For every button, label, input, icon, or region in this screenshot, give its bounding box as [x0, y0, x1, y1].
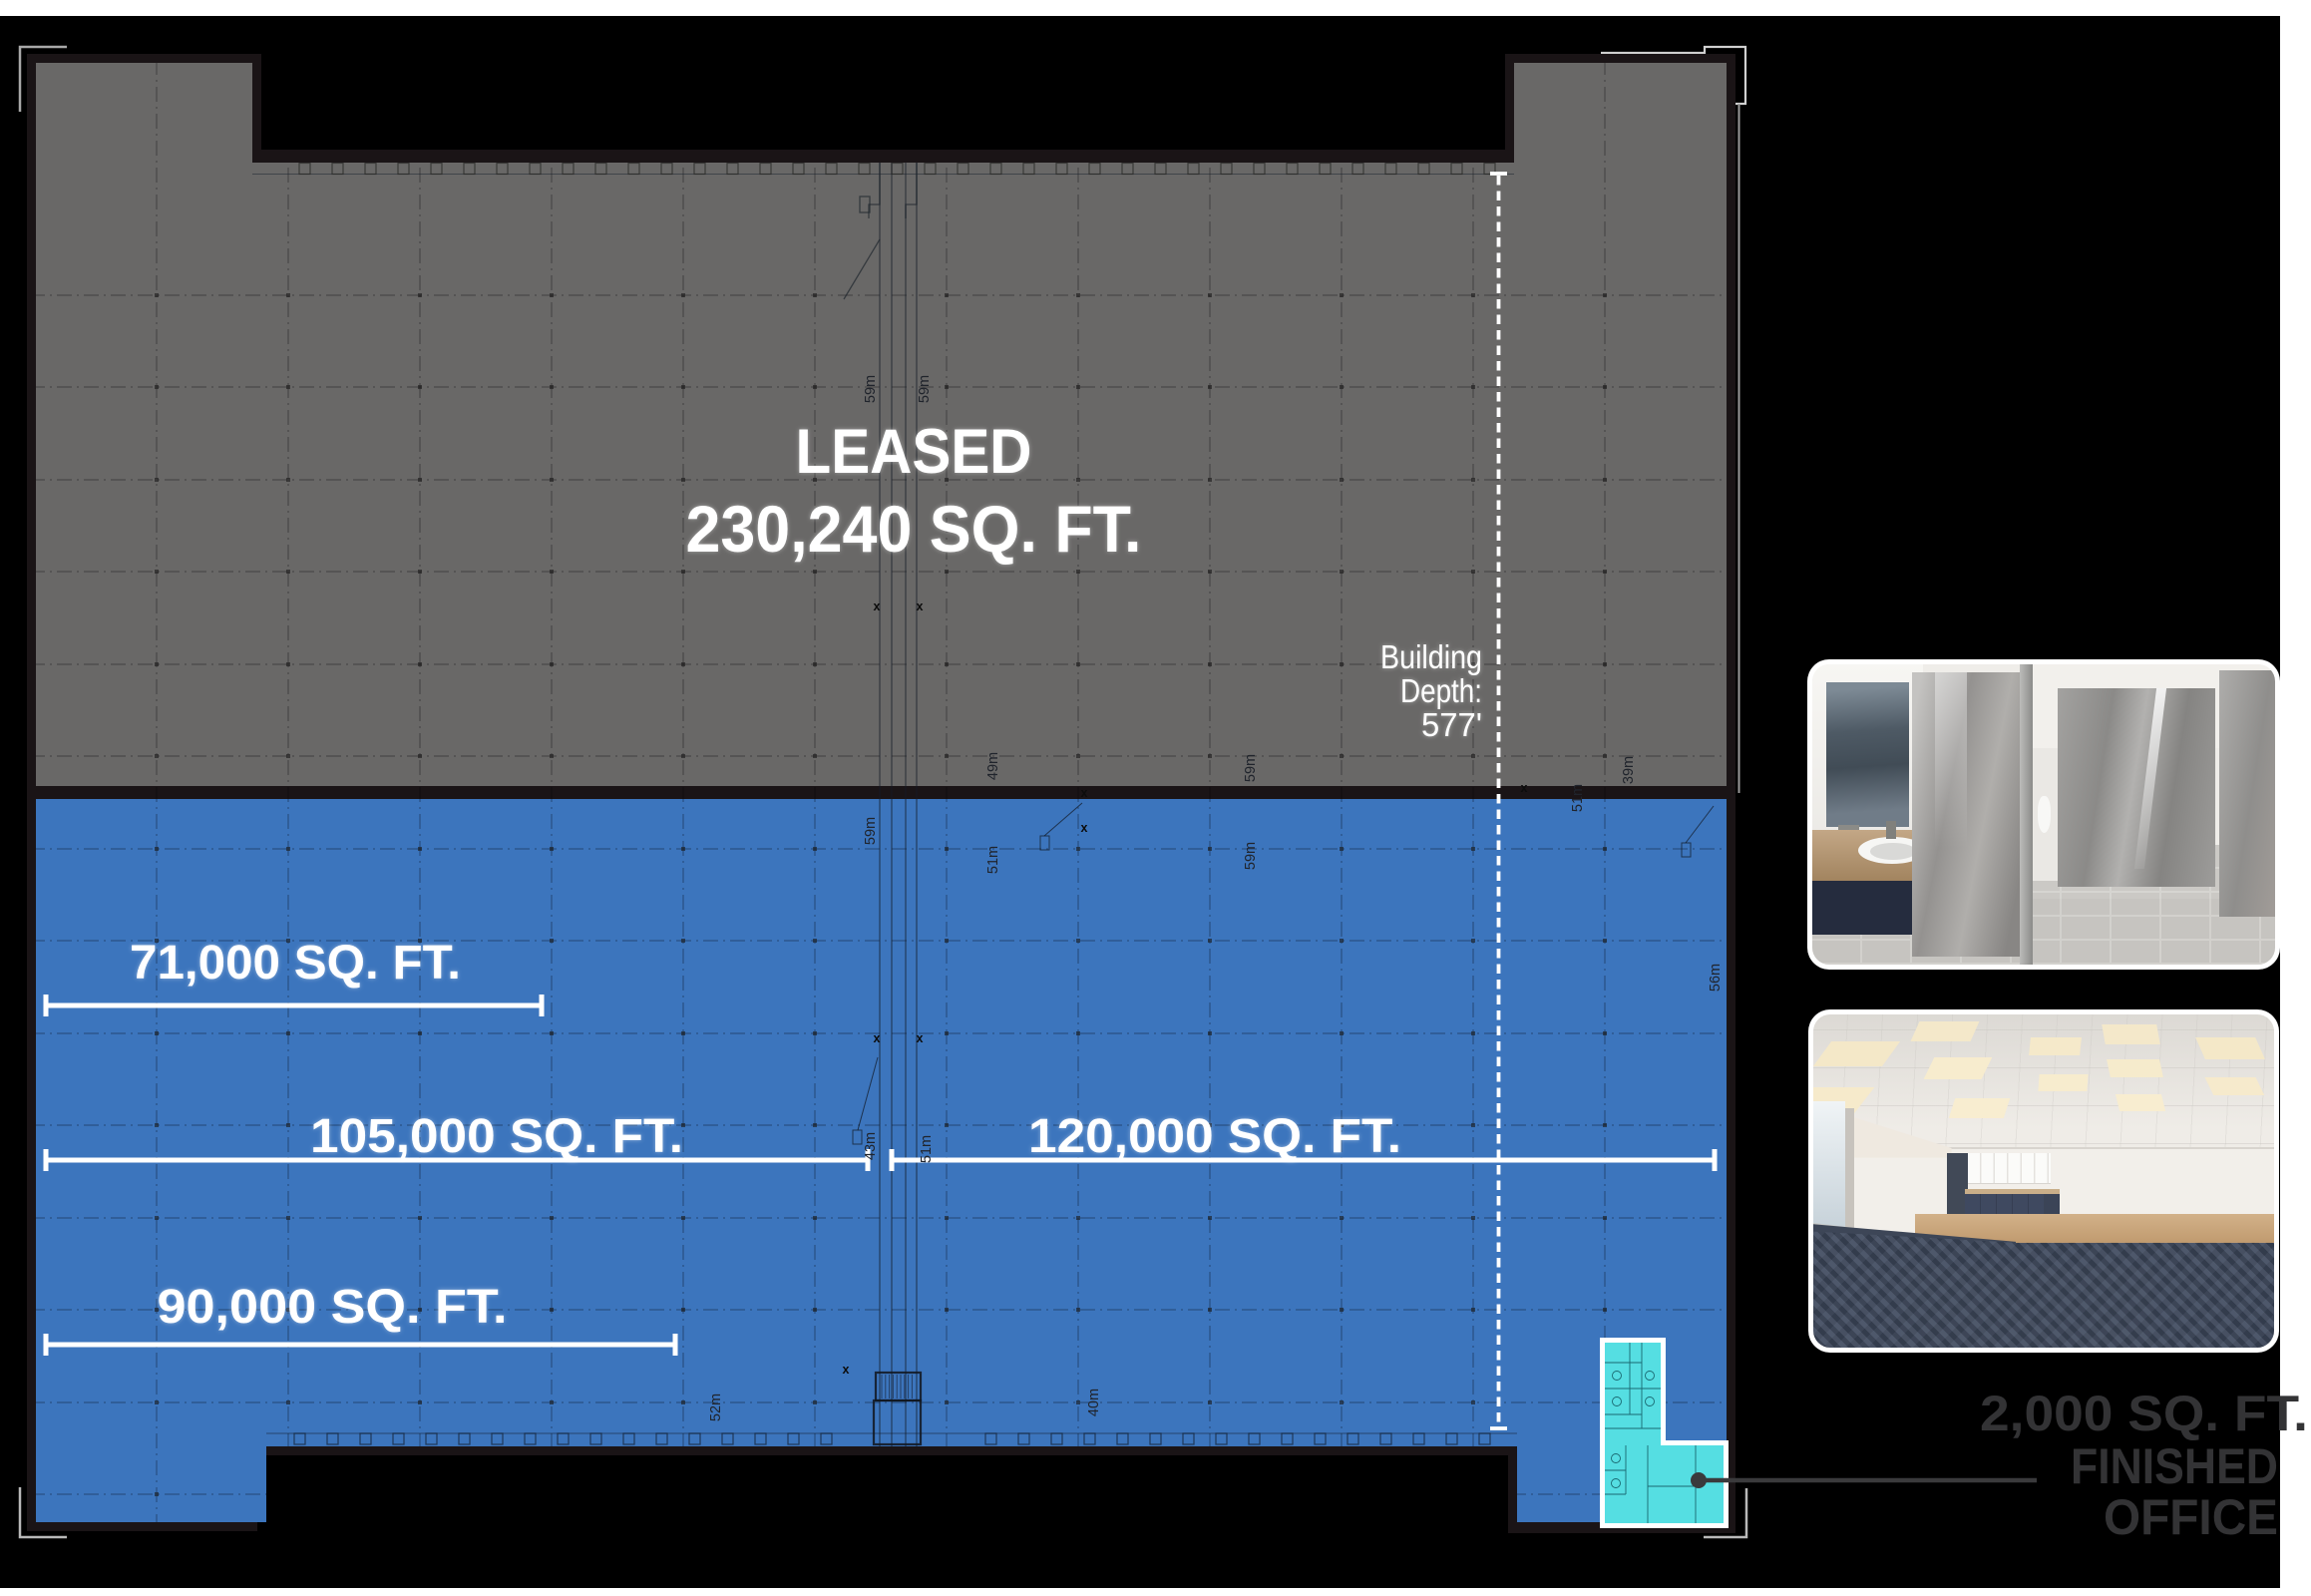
svg-text:x: x — [843, 1363, 850, 1377]
svg-text:230,240 SQ. FT.: 230,240 SQ. FT. — [686, 492, 1142, 566]
svg-text:90,000 SQ. FT.: 90,000 SQ. FT. — [158, 1281, 508, 1334]
svg-text:2,000 SQ. FT.: 2,000 SQ. FT. — [1980, 1386, 2308, 1441]
svg-text:51m: 51m — [985, 846, 1001, 874]
svg-text:59m: 59m — [863, 817, 879, 845]
svg-text:52m: 52m — [708, 1394, 724, 1421]
svg-text:40m: 40m — [1086, 1389, 1102, 1416]
svg-text:71,000 SQ. FT.: 71,000 SQ. FT. — [130, 937, 461, 990]
svg-text:43m: 43m — [863, 1132, 879, 1160]
svg-text:x: x — [1521, 781, 1528, 795]
svg-text:OFFICE: OFFICE — [2104, 1489, 2278, 1545]
svg-text:x: x — [874, 599, 881, 613]
svg-text:x: x — [917, 599, 924, 613]
svg-text:Depth:: Depth: — [1400, 672, 1482, 709]
svg-text:x: x — [1081, 821, 1088, 835]
svg-text:51m: 51m — [919, 1135, 935, 1163]
svg-text:577': 577' — [1421, 706, 1482, 743]
svg-text:120,000 SQ. FT.: 120,000 SQ. FT. — [1028, 1110, 1401, 1163]
svg-text:59m: 59m — [1243, 842, 1259, 870]
svg-text:x: x — [917, 1031, 924, 1045]
svg-text:49m: 49m — [985, 752, 1001, 780]
svg-text:x: x — [1081, 786, 1088, 800]
svg-text:LEASED: LEASED — [796, 417, 1032, 487]
svg-text:105,000 SQ. FT.: 105,000 SQ. FT. — [310, 1110, 683, 1163]
svg-text:59m: 59m — [917, 375, 933, 403]
svg-text:59m: 59m — [1243, 754, 1259, 782]
svg-text:51m: 51m — [1570, 784, 1586, 812]
svg-text:x: x — [874, 1031, 881, 1045]
svg-text:39m: 39m — [1621, 756, 1637, 784]
svg-text:FINISHED: FINISHED — [2071, 1438, 2278, 1494]
svg-text:59m: 59m — [863, 375, 879, 403]
svg-text:56m: 56m — [1708, 964, 1724, 992]
svg-text:Building: Building — [1380, 638, 1482, 675]
